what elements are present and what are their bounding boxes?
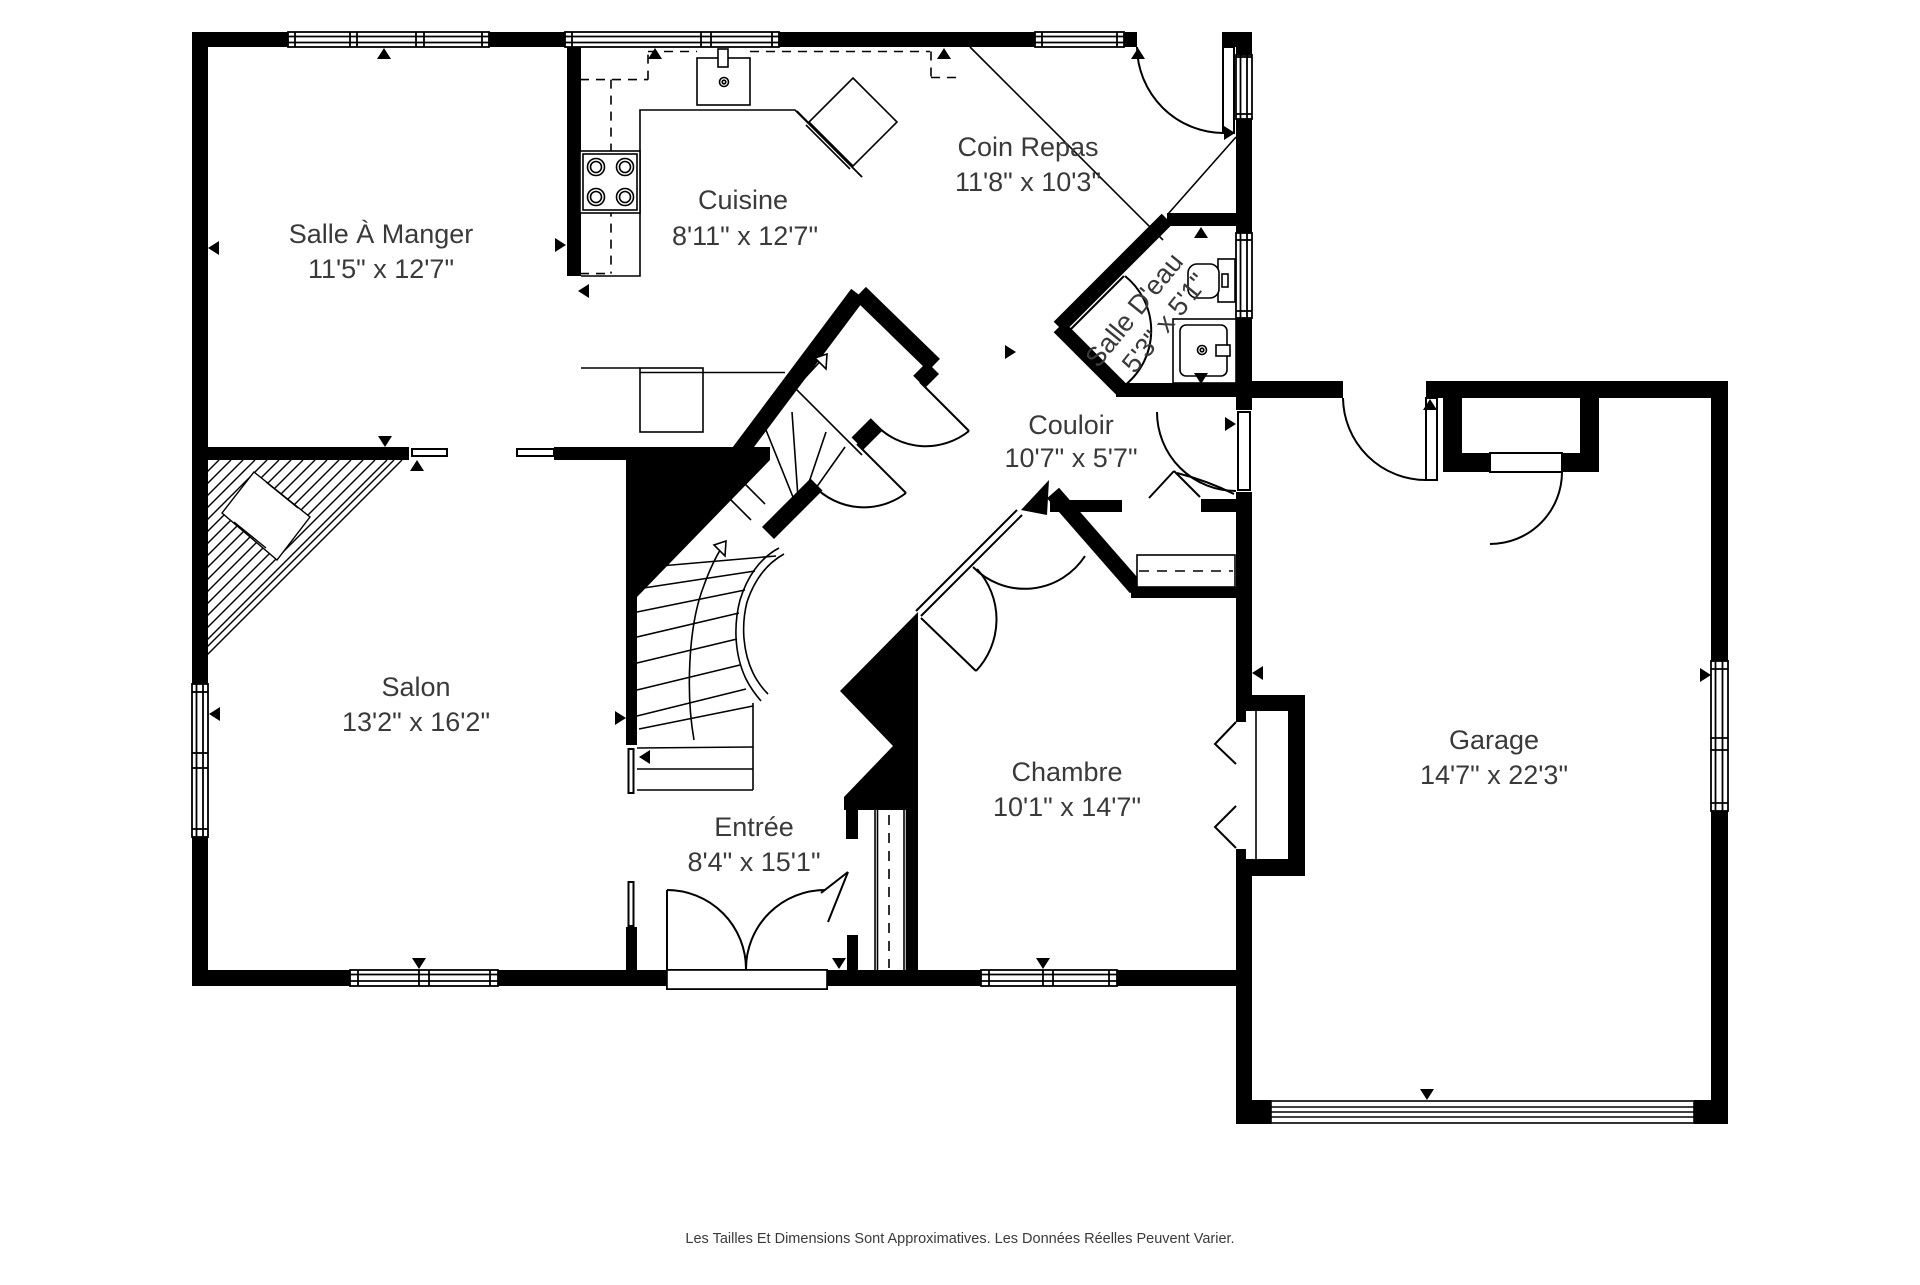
svg-text:10'1" x 14'7": 10'1" x 14'7" xyxy=(993,792,1141,822)
svg-text:11'8" x 10'3": 11'8" x 10'3" xyxy=(955,167,1101,197)
svg-text:Les Tailles Et Dimensions Sont: Les Tailles Et Dimensions Sont Approxima… xyxy=(685,1231,1234,1247)
svg-text:14'7" x 22'3": 14'7" x 22'3" xyxy=(1420,760,1568,790)
svg-text:Cuisine: Cuisine xyxy=(698,185,788,215)
svg-text:Coin Repas: Coin Repas xyxy=(957,132,1098,162)
svg-text:11'5" x 12'7": 11'5" x 12'7" xyxy=(308,254,454,284)
svg-text:8'4" x 15'1": 8'4" x 15'1" xyxy=(687,847,820,877)
svg-text:Salon: Salon xyxy=(381,672,450,702)
svg-text:10'7" x 5'7": 10'7" x 5'7" xyxy=(1004,443,1137,473)
svg-text:Couloir: Couloir xyxy=(1028,410,1114,440)
svg-text:8'11" x 12'7": 8'11" x 12'7" xyxy=(672,221,818,251)
svg-text:Entrée: Entrée xyxy=(714,812,794,842)
svg-text:Salle À Manger: Salle À Manger xyxy=(289,219,474,249)
svg-text:13'2" x 16'2": 13'2" x 16'2" xyxy=(342,707,490,737)
svg-text:Garage: Garage xyxy=(1449,725,1539,755)
svg-text:Chambre: Chambre xyxy=(1011,757,1122,787)
